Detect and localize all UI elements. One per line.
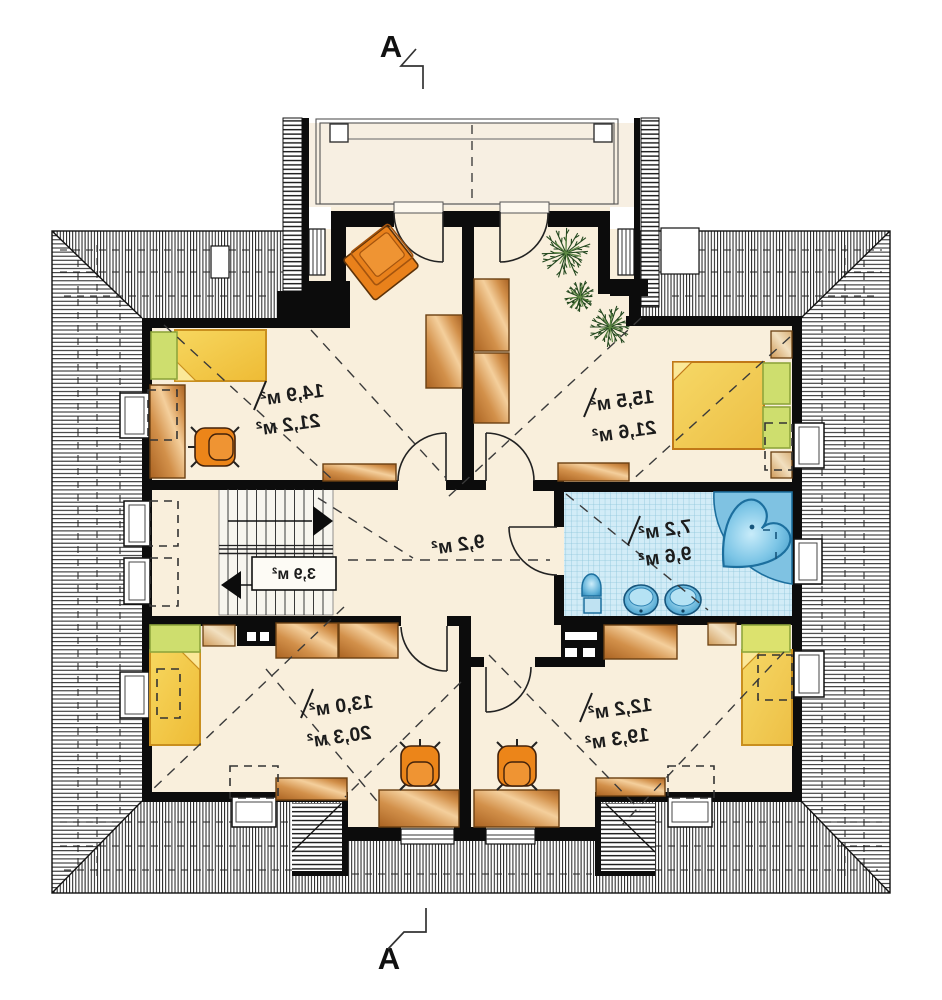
svg-text:A: A [378,941,400,976]
svg-text:3,9 м²: 3,9 м² [272,566,316,583]
svg-text:A: A [380,29,402,64]
